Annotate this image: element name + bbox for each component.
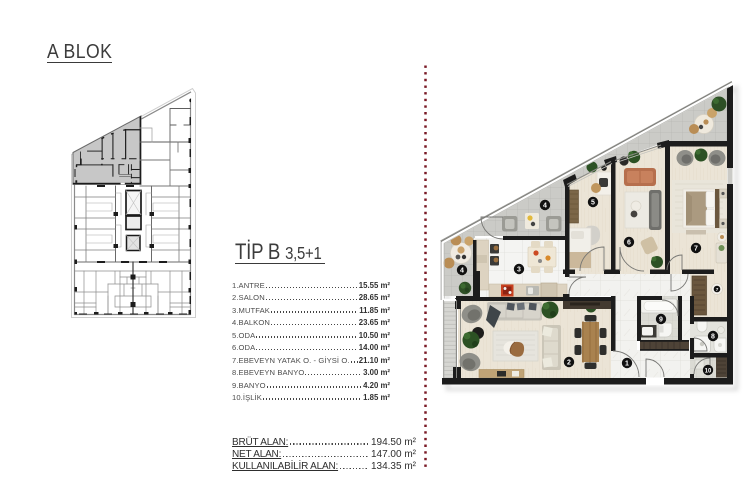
svg-text:4: 4	[460, 268, 464, 275]
svg-text:9: 9	[659, 317, 663, 324]
svg-text:5: 5	[591, 200, 595, 207]
svg-text:10: 10	[705, 369, 712, 375]
svg-text:8: 8	[711, 334, 715, 341]
svg-text:7: 7	[716, 287, 719, 292]
svg-text:4: 4	[543, 203, 547, 210]
svg-text:1: 1	[625, 361, 629, 368]
svg-text:7: 7	[694, 246, 698, 253]
svg-text:3: 3	[517, 267, 521, 274]
svg-text:2: 2	[567, 360, 571, 367]
svg-text:6: 6	[627, 240, 631, 247]
